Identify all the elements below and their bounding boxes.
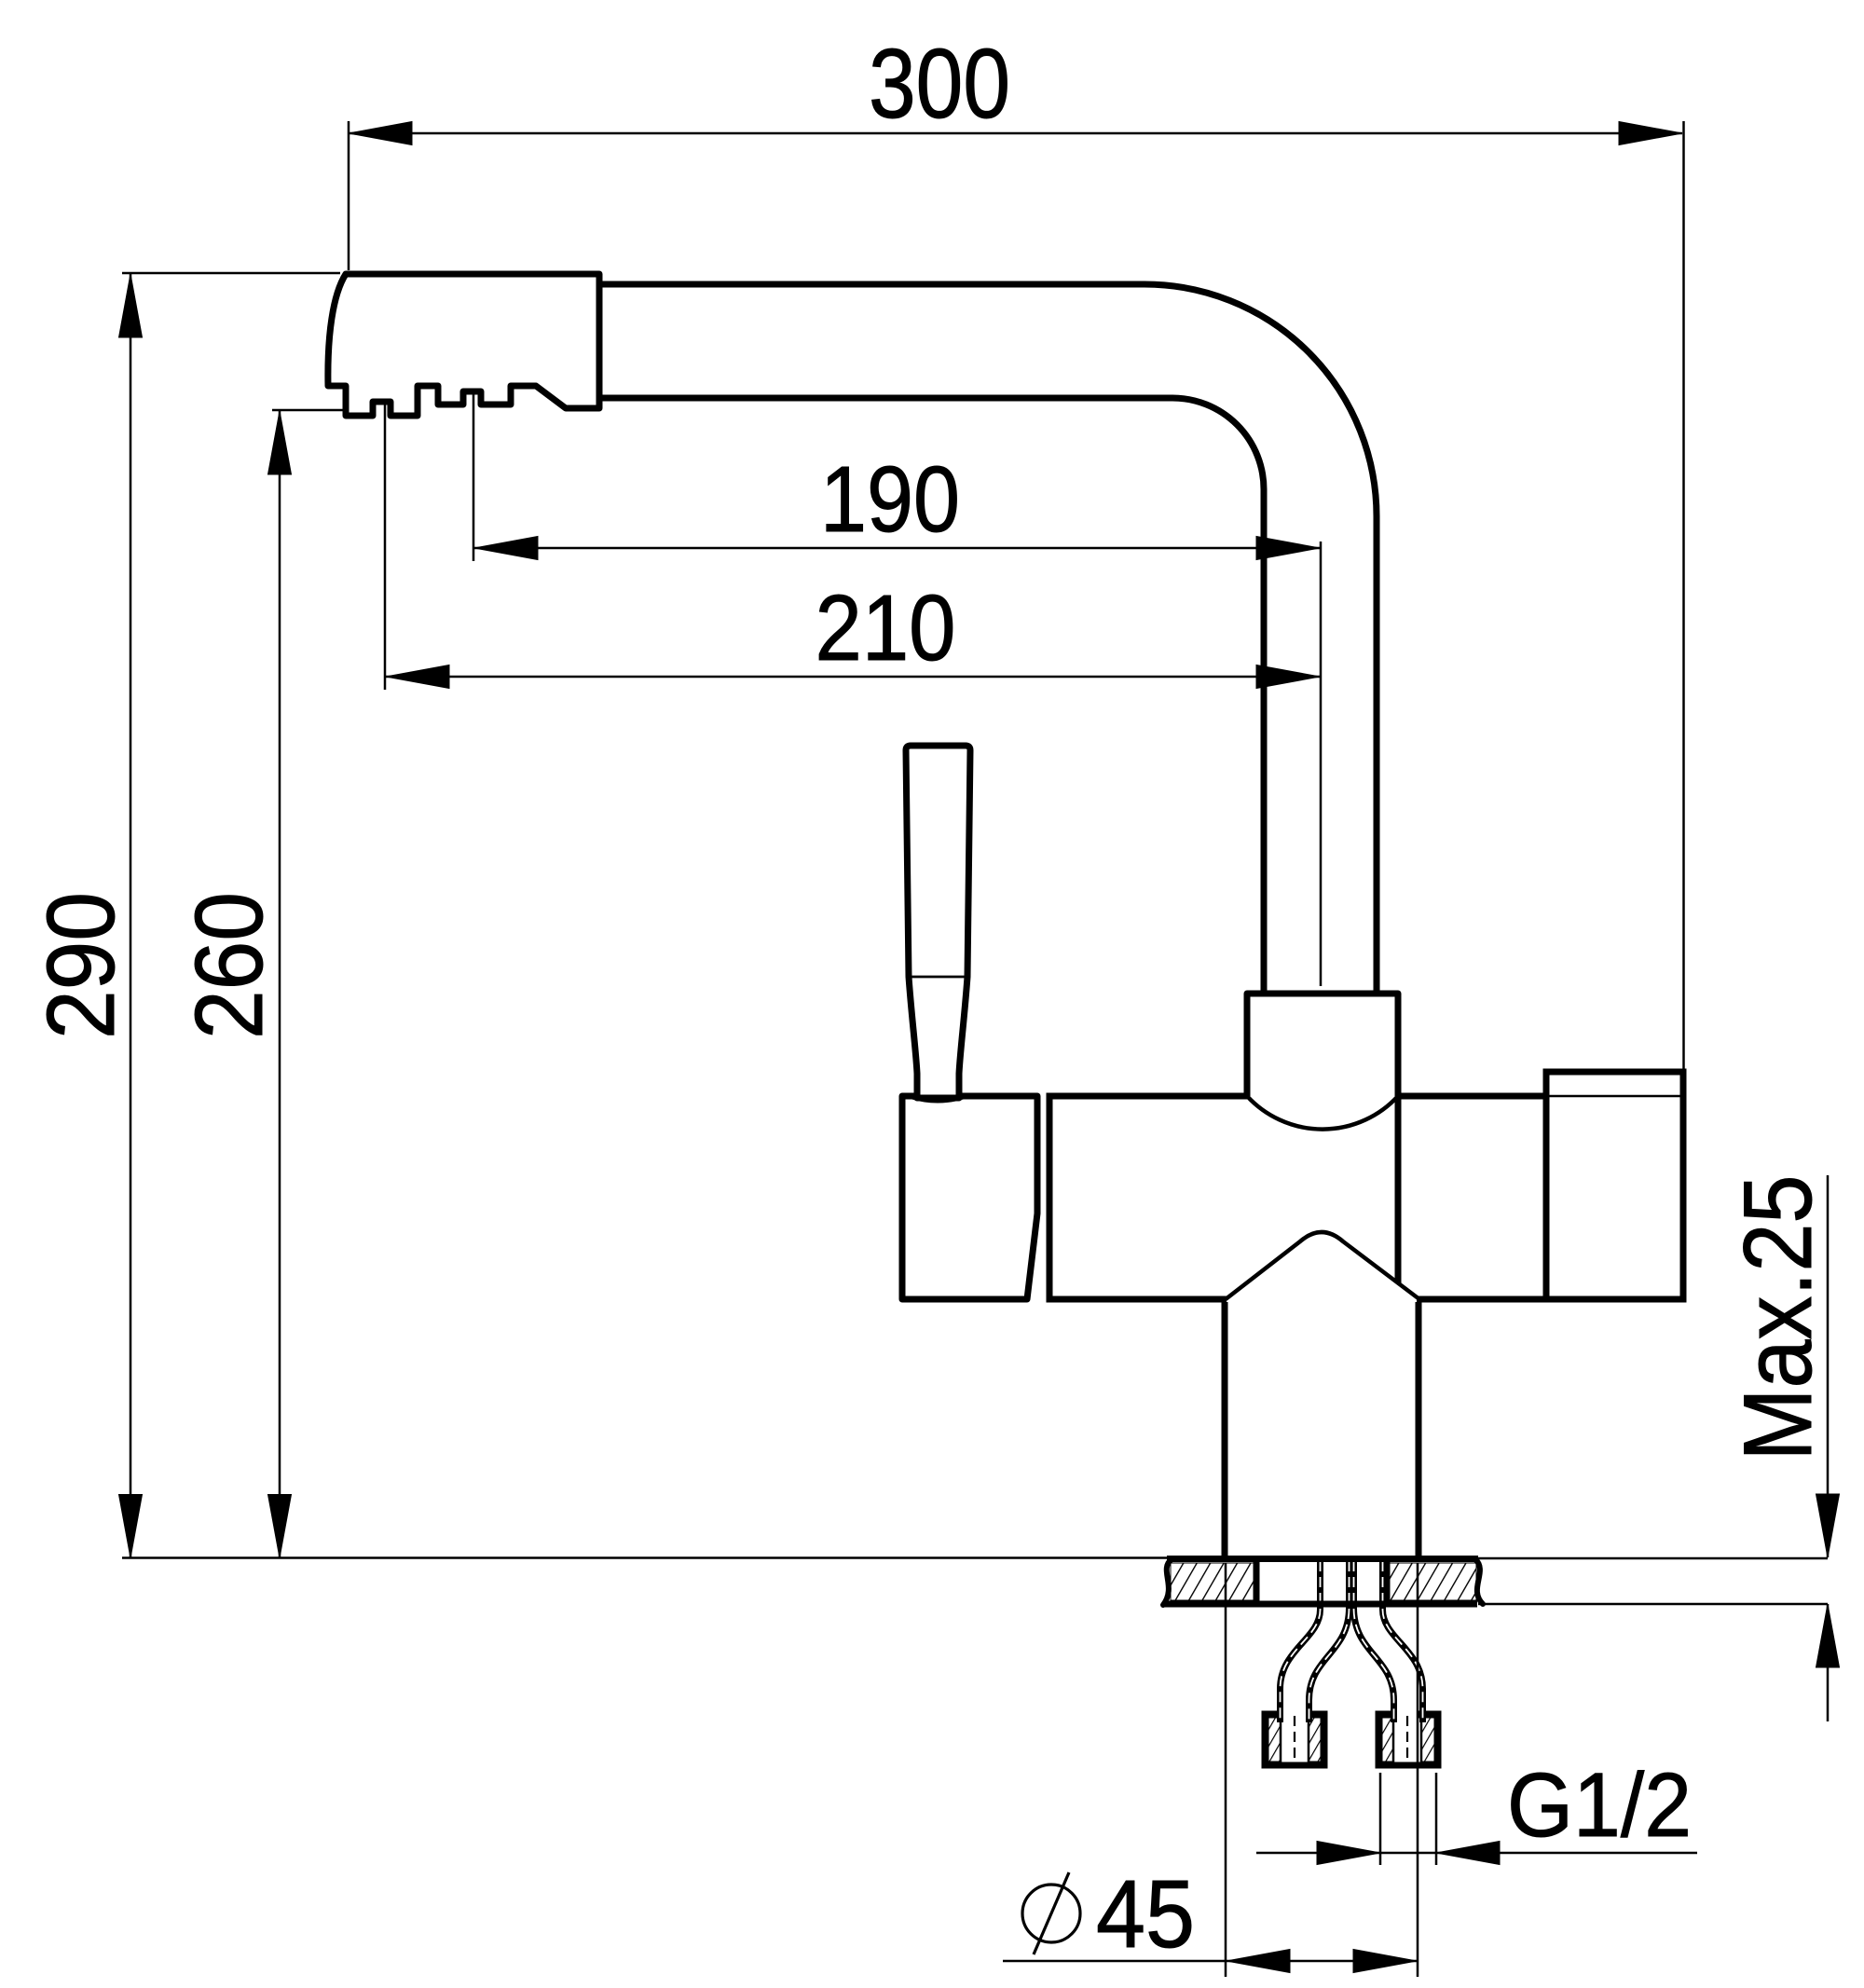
svg-text:G1/2: G1/2	[1507, 1754, 1692, 1856]
svg-text:300: 300	[869, 29, 1010, 139]
svg-text:45: 45	[1096, 1860, 1195, 1967]
svg-text:190: 190	[820, 447, 960, 552]
svg-text:260: 260	[175, 892, 282, 1039]
svg-text:290: 290	[27, 892, 134, 1039]
svg-text:210: 210	[815, 576, 956, 680]
svg-text:Max.25: Max.25	[1724, 1175, 1832, 1461]
